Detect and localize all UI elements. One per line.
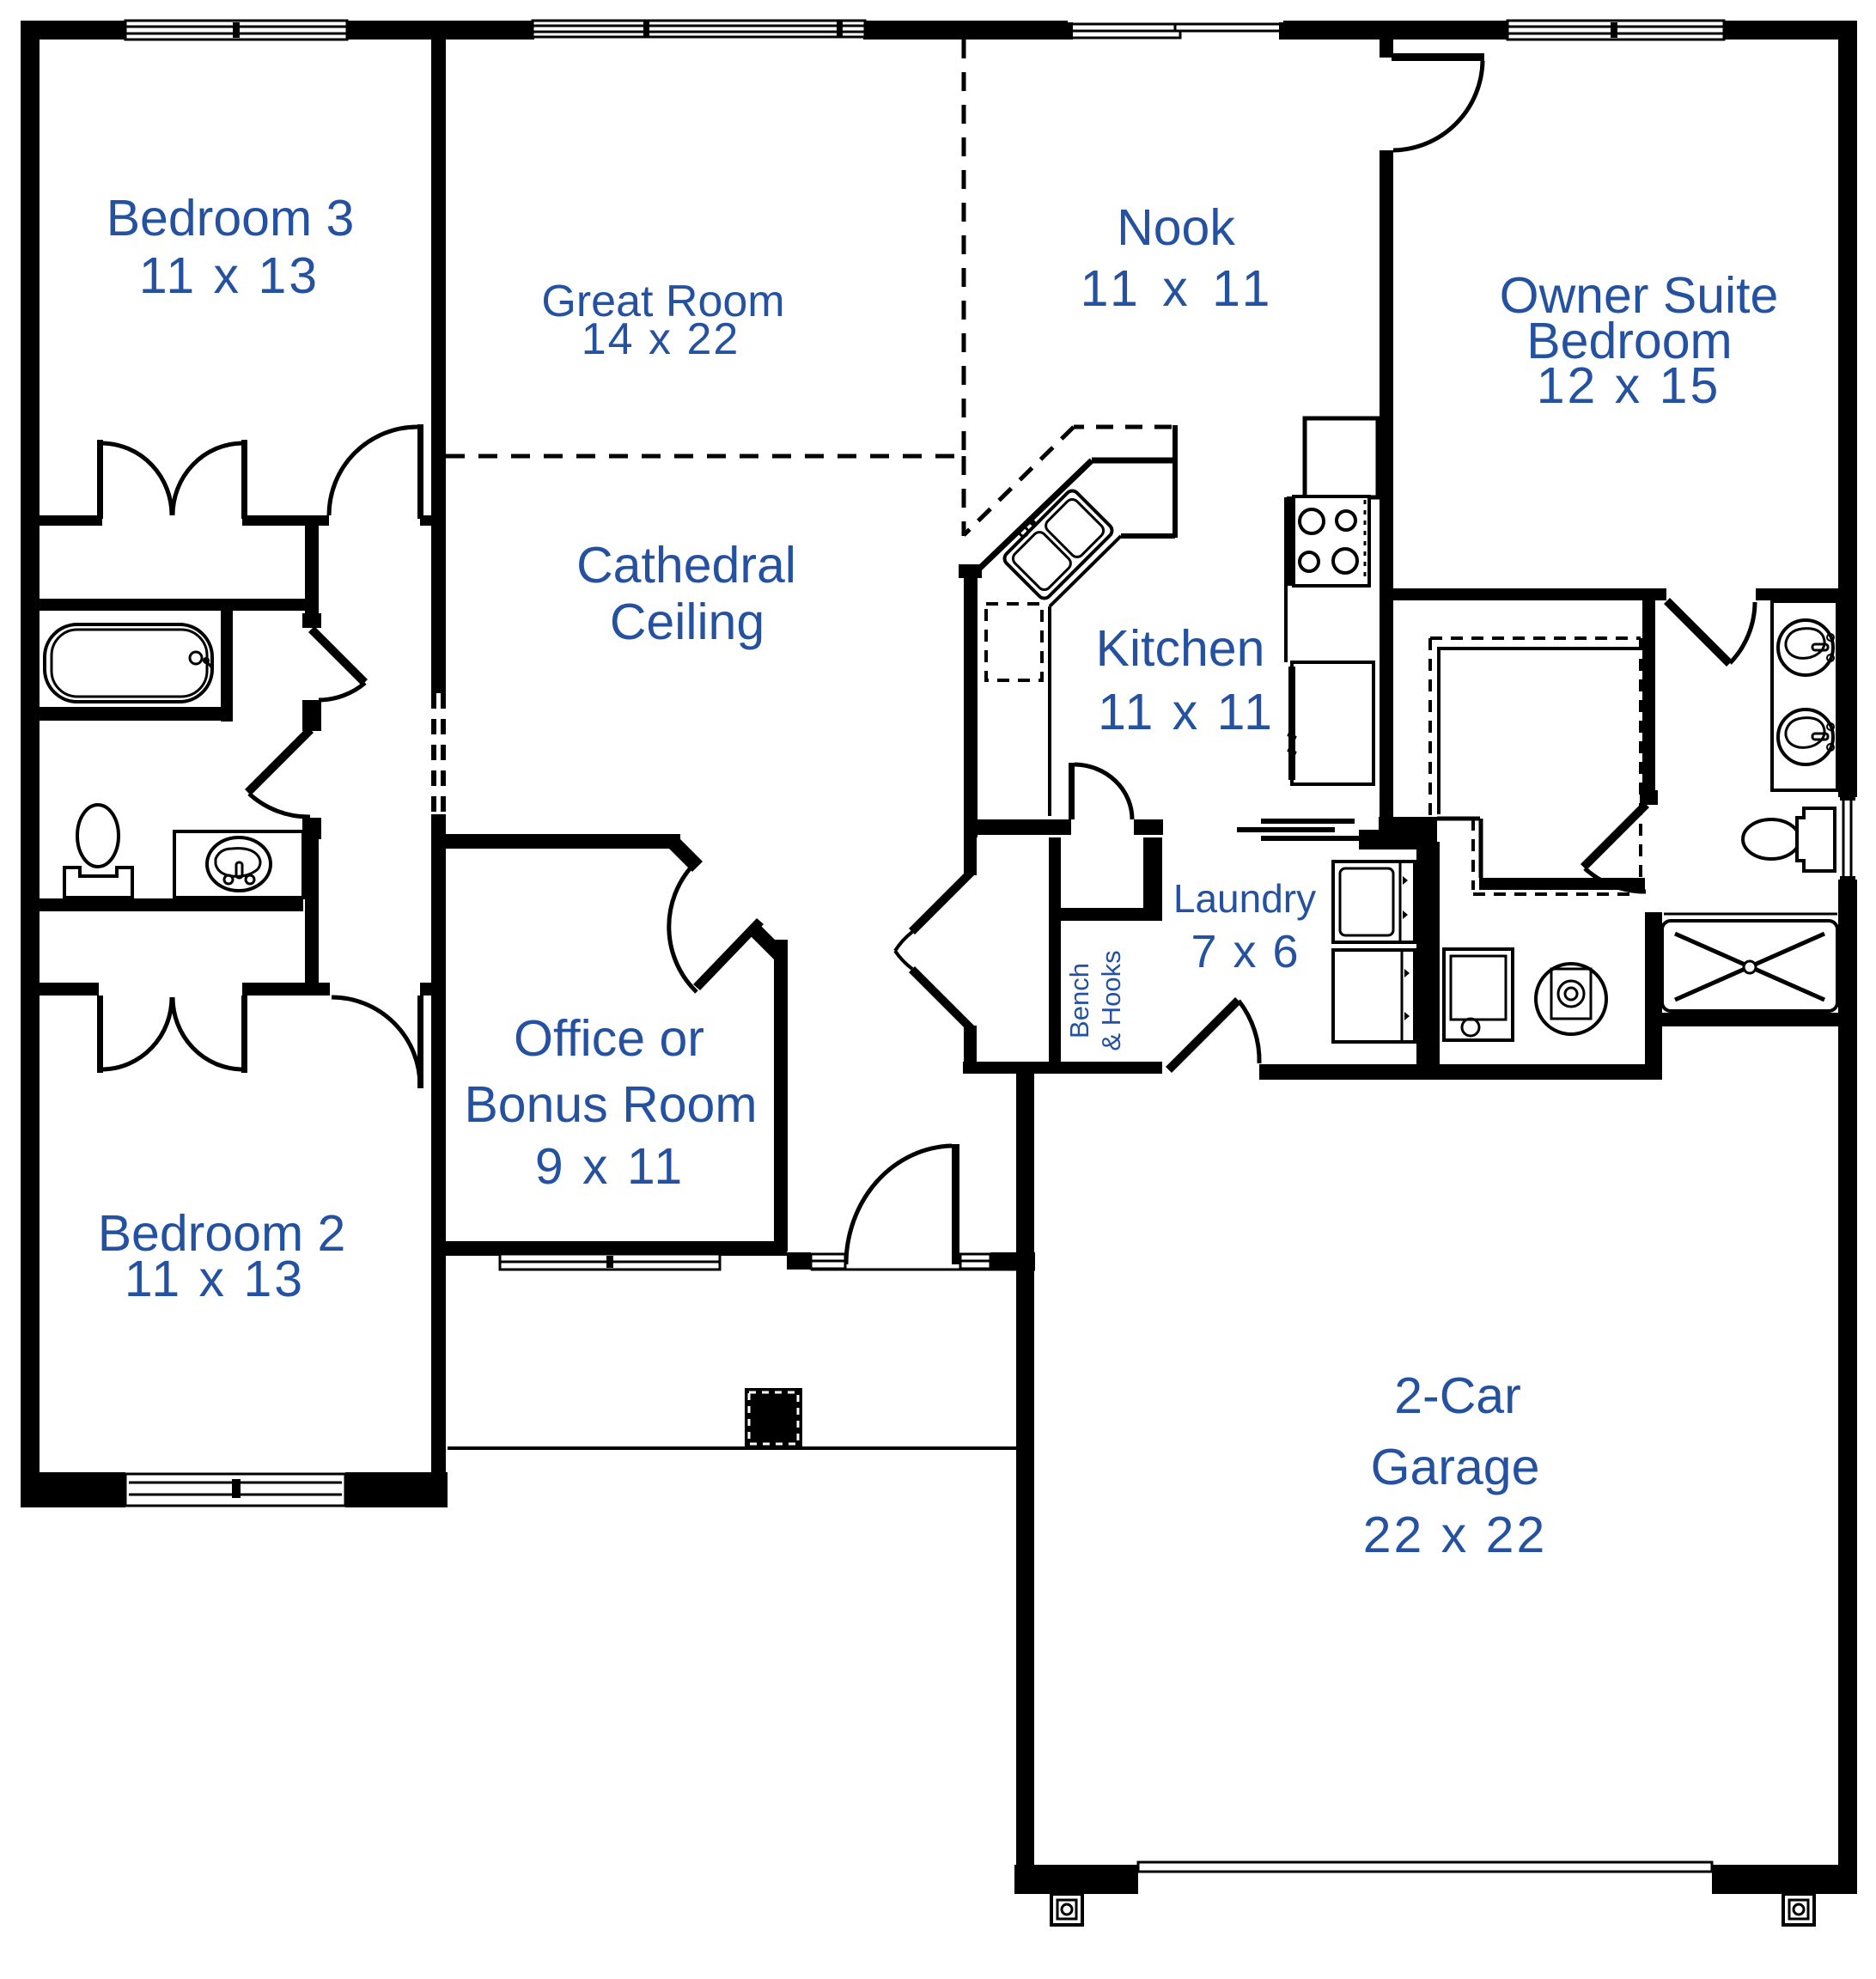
svg-text:7 x 6: 7 x 6 [1191,926,1300,977]
svg-text:11 x 11: 11 x 11 [1081,260,1276,317]
svg-text:Bonus Room: Bonus Room [464,1076,757,1133]
svg-text:Nook: Nook [1117,199,1235,256]
svg-text:Bench: Bench [1064,963,1094,1038]
svg-text:2-Car: 2-Car [1394,1367,1521,1424]
svg-text:Cathedral: Cathedral [576,537,796,594]
svg-text:Ceiling: Ceiling [610,594,764,650]
svg-text:11 x 11: 11 x 11 [1098,684,1275,740]
svg-text:Garage: Garage [1371,1439,1540,1495]
svg-text:& Hooks: & Hooks [1096,950,1126,1050]
svg-text:Kitchen: Kitchen [1096,620,1265,677]
svg-text:Office or: Office or [514,1010,704,1067]
svg-text:14 x 22: 14 x 22 [582,314,740,364]
svg-text:9 x 11: 9 x 11 [535,1138,685,1195]
svg-text:11 x 13: 11 x 13 [139,247,320,304]
svg-text:Laundry: Laundry [1173,876,1316,921]
svg-text:22 x 22: 22 x 22 [1363,1507,1548,1563]
svg-text:Bedroom 3: Bedroom 3 [107,190,355,247]
svg-text:11 x 13: 11 x 13 [125,1251,305,1307]
svg-text:12 x 15: 12 x 15 [1537,357,1721,414]
